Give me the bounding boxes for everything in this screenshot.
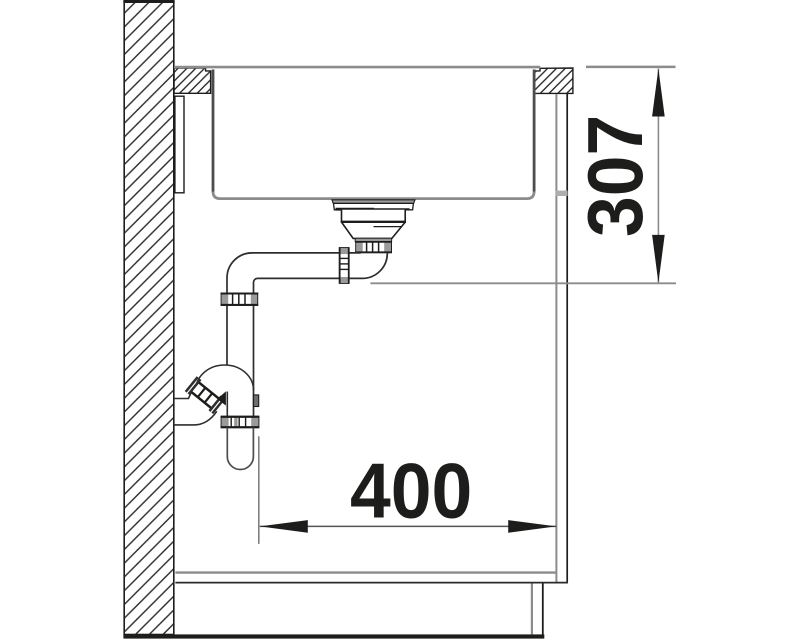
svg-text:400: 400 <box>350 447 472 535</box>
svg-text:307: 307 <box>572 115 660 237</box>
